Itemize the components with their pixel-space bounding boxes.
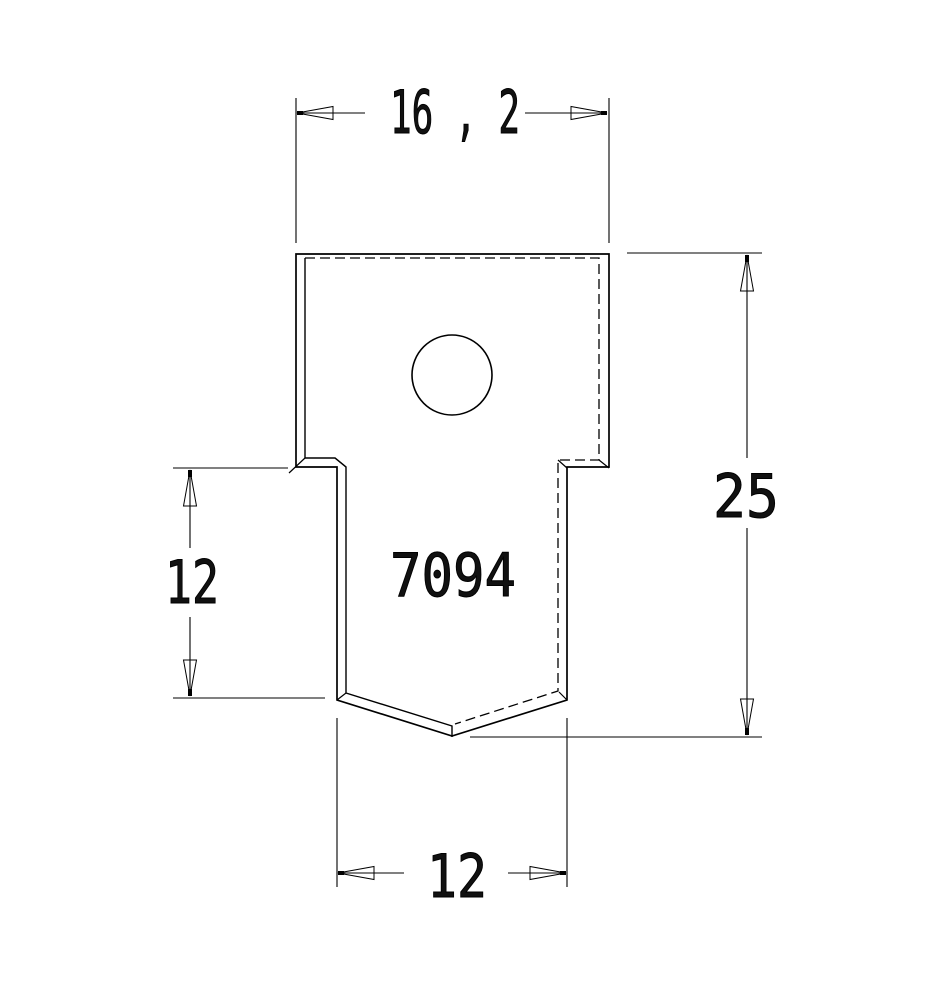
dimension-tab-length: 12: [165, 468, 325, 698]
dim-label-tab-length: 12: [165, 548, 219, 618]
part-outline-back-visible: [305, 258, 452, 737]
dim-label-tab-width: 12: [427, 842, 487, 912]
drawing-canvas: 7094 16 , 2 25: [0, 0, 946, 996]
part-outline-back-hidden: [305, 258, 599, 724]
part-view: 7094: [289, 254, 609, 737]
dimensions: 16 , 2 25 12: [165, 78, 779, 912]
dimension-overall-height: 25: [470, 253, 779, 737]
part-number-label: 7094: [390, 541, 516, 611]
technical-drawing-svg: 7094 16 , 2 25: [0, 0, 946, 996]
part-outline-front: [296, 254, 609, 736]
dim-label-overall-height: 25: [713, 462, 779, 532]
mounting-hole: [412, 335, 492, 415]
dimension-tab-width: 12: [337, 718, 567, 912]
dimension-top-width: 16 , 2: [296, 78, 609, 243]
dim-label-top-width: 16 , 2: [390, 78, 520, 148]
